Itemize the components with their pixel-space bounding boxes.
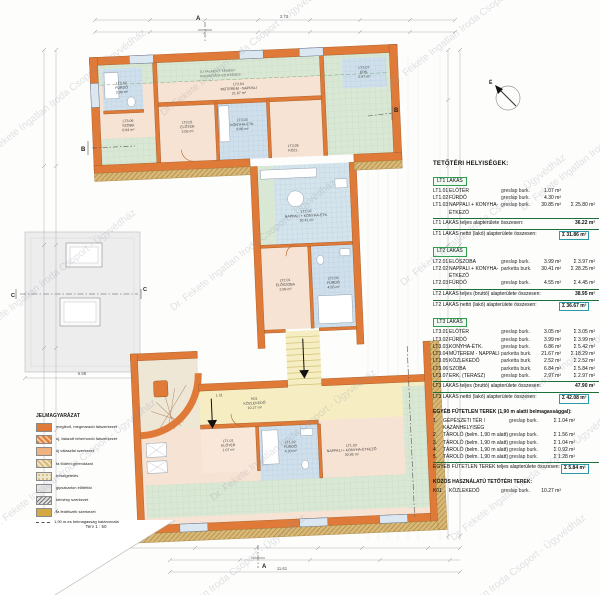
legend: JELMAGYARÁZAT meglévő, megmaradó falszer… [36,414,128,528]
schedule-row: LT2.03FÜRDŐgreslap burk.4.55 m²Σ 4.45 m² [433,280,599,287]
schedule-row: K01KÖZLEKEDŐgreslap burk.10.27 m² [433,488,599,495]
net-total-box: Σ 42.08 m² [559,394,589,403]
cell-finish: greslap burk. [501,280,533,287]
cell-code: LT3.01 [433,329,449,336]
section-total-row: LT1 LAKÁS teljes alapterülete összesen:3… [433,218,599,227]
cell-gross: 4.55 m² [533,280,561,287]
legend-title: JELMAGYARÁZAT [36,414,128,420]
net-total-box: Σ 31.86 m² [559,231,589,240]
cell-finish: parketta burk. [501,266,533,273]
schedule-title: TETŐTÉRI HELYISÉGEK: [433,160,599,169]
schedule-row: LT3.02FÜRDŐgreslap burk.3.99 m²Σ 3.99 m² [433,337,599,344]
cell-gross: 3.05 m² [533,329,561,336]
schedule-row: 2.TÁROLÓ (belm. 1,90 m alatt)greslap bur… [433,432,599,439]
cell-gross: 1.07 m² [533,188,561,195]
cell-finish: greslap burk. [501,188,533,195]
cell-gross: 6.86 m² [533,344,561,351]
cell-net: Σ 28.25 m² [561,266,595,273]
apartment-label: LT1 LAKÁS [433,177,467,186]
schedule-section-lt3: LT3 LAKÁS LT3.01ELŐTÉRgreslap burk.3.05 … [433,314,599,404]
cell-name: ERK. (TERASZ) [449,373,501,380]
cell-code: LT3.05 [433,358,449,365]
cell-finish: greslap burk. [501,329,533,336]
cell-code: LT1.02 [433,195,449,202]
cell-code: LT1.03 [433,202,449,209]
room-label-area: 3.05 m² [181,129,194,134]
cell-net: Σ 3.97 m² [561,259,595,266]
floor-plan-sheet: 5.98 C C [0,0,600,595]
svg-text:B: B [394,108,399,114]
neighbour-roof-plan: 5.98 [23,232,142,380]
cell-net: Σ 5.42 m² [561,344,595,351]
room-label-area: 2.97 m² [358,74,371,79]
stair-zone [138,358,201,431]
schedule-extra-section: EGYÉB FŰTETLEN TEREK (1,90 m alatti belm… [433,409,599,474]
cell-code: LT2.03 [433,280,449,287]
cell-name: ELŐSZOBA [449,259,501,266]
cell-finish: greslap burk. [501,195,533,202]
building: LT3.02 FÜRDŐ 3.99 m² LT3.06 SZOBA 6.84 m… [89,43,447,544]
cell-code: LT3.07 [433,373,449,380]
cell-gross: 30.85 m² [533,202,561,209]
dim-label: 11.61 [277,566,288,571]
legend-item: új válaszfal szerkezet [36,447,128,456]
sheet-corner [0,520,175,595]
cell-net: Σ 18.29 m² [561,351,595,358]
schedule-row: LT1.03NAPPALI + KONYHA-ÉTKEZŐgreslap bur… [433,202,599,217]
skylight [60,298,100,326]
svg-text:A: A [262,564,267,570]
legend-item: gipszkarton előtétfal [36,484,128,493]
north-arrow: É [489,78,520,110]
cell-gross: 2.52 m² [533,358,561,365]
cell-finish: parketta burk. [501,366,533,373]
common-title: KÖZÖS HASZNÁLATÚ TETŐTÉRI TEREK: [433,479,599,486]
cell-net: Σ 3.99 m² [561,337,595,344]
cell-code: LT3.04 [433,351,449,358]
legend-swatch-roof-timber [36,508,52,517]
legend-item: fa fedélszék szerkezet [36,508,128,517]
section-marker-c: C [143,287,147,293]
legend-item: fa födém gerendázat [36,459,128,468]
legend-swatch-existing-wall [36,423,52,432]
cell-name: FÜRDŐ [449,337,501,344]
net-total-box: Σ 5.84 m² [561,464,589,473]
cell-finish: greslap burk. [501,373,533,380]
cell-net: Σ 5.84 m² [561,366,595,373]
section-net-row: LT1 LAKÁS nettó (lakó) alapterülete össz… [433,229,599,240]
cell-net: Σ 25.80 m² [561,202,595,209]
room-schedule: TETŐTÉRI HELYISÉGEK: LT1 LAKÁS LT1.01ELŐ… [433,160,600,495]
schedule-common-section: KÖZÖS HASZNÁLATÚ TETŐTÉRI TEREK: K01KÖZL… [433,479,599,496]
legend-item: hőszigetelés [36,472,128,481]
legend-swatch-drywall [36,484,52,493]
cell-code: LT3.02 [433,337,449,344]
schedule-row: LT3.07ERK. (TERASZ)greslap burk.2.97 m²Σ… [433,373,599,380]
cell-gross: 21.67 m² [533,351,561,358]
svg-text:B: B [81,147,86,153]
section-marker-a-bottom: A [251,545,267,570]
cell-finish: parketta burk. [501,358,533,365]
cell-finish: greslap burk. [501,344,533,351]
cell-code: LT2.02 [433,266,449,273]
section-total-row: LT2 LAKÁS teljes (bruttó) alapterülete ö… [433,289,599,298]
room-label-area: 3.99 m² [116,90,129,95]
cell-gross: 3.99 m² [533,337,561,344]
room-label-area: 6.84 m² [122,128,135,133]
legend-swatch-wood-joist [36,459,52,468]
cell-gross: 6.84 m² [533,366,561,373]
chimney [153,381,168,398]
schedule-row: 3.TÁROLÓ (belm. 1,90 m alatt)greslap bur… [433,440,599,447]
schedule-row: LT2.02NAPPALI + KONYHA-ÉTKEZŐparketta bu… [433,266,599,281]
legend-item: kémény szerkezet [36,496,128,505]
room-label-area: 4.30 m² [284,449,297,454]
cell-name: SZOBA [449,366,501,373]
svg-text:A: A [196,16,201,22]
dim-label: 5.98 [78,371,87,376]
room-label-area: 4.55 m² [327,285,340,290]
stair-run-label: L 11 [216,393,223,397]
section-net-row: LT3 LAKÁS nettó (lakó) alapterülete össz… [433,392,599,403]
cell-net: Σ 2.52 m² [561,358,595,365]
extra-title: EGYÉB FŰTETLEN TEREK (1,90 m alatti belm… [433,409,599,416]
room-label-area: 10.27 m² [248,405,263,410]
schedule-row: LT3.01ELŐTÉRgreslap burk.3.05 m²Σ 3.05 m… [433,329,599,336]
schedule-row: LT3.06SZOBAparketta burk.6.84 m²Σ 5.84 m… [433,366,599,373]
cell-code: LT3.06 [433,366,449,373]
cell-finish: parketta burk. [501,351,533,358]
cell-net: Σ 3.05 m² [561,329,595,336]
cell-name: KÖZLEKEDŐ [449,358,501,365]
room-label-area: 3.99 m² [279,287,292,292]
cell-name: NAPPALI + KONYHA-ÉTKEZŐ [449,266,501,281]
section-marker-c: C [11,293,15,299]
room-label-area: 30.85 m² [345,452,360,457]
apartment-label: LT3 LAKÁS [433,318,467,327]
legend-swatch-new-wall [36,435,52,444]
cell-gross: 2.97 m² [533,373,561,380]
legend-item: 1,90 m-es belmagasság határvonala [36,520,128,525]
cell-name: FÜRDŐ [449,195,501,202]
room-label-name: KÖZL. [288,148,299,152]
skylight [66,243,102,267]
cell-code: LT2.01 [433,259,449,266]
cell-net: Σ 2.97 m² [561,373,595,380]
schedule-section-lt2: LT2 LAKÁS LT2.01ELŐSZOBAgreslap burk.3.9… [433,243,599,311]
room-label-area: 21.67 m² [232,91,247,96]
cell-name: ELŐTÉR [449,329,501,336]
room-label-area: 30.41 m² [299,218,314,223]
north-label: É [489,78,493,86]
legend-item: új, falazott teherhordó falszerkezet [36,435,128,444]
cell-name: NAPPALI + KONYHA-ÉTKEZŐ [449,202,501,217]
schedule-section-lt1: LT1 LAKÁS LT1.01ELŐTÉRgreslap burk.1.07 … [433,173,599,241]
section-net-row: LT2 LAKÁS nettó (lakó) alapterülete össz… [433,300,599,311]
cell-finish: greslap burk. [501,337,533,344]
apartment-label: LT2 LAKÁS [433,247,467,256]
cell-net: Σ 4.45 m² [561,280,595,287]
schedule-row: LT2.01ELŐSZOBAgreslap burk.3.99 m²Σ 3.97… [433,259,599,266]
cell-finish: greslap burk. [501,259,533,266]
cell-gross: 3.99 m² [533,259,561,266]
legend-swatch-partition [36,447,52,456]
legend-swatch-headroom-line [36,522,50,523]
legend-swatch-insulation [36,472,52,481]
legend-item: meglévő, megmaradó falszerkezet [36,423,128,432]
cell-gross: 30.41 m² [533,266,561,273]
schedule-row: 1.GÉPÉSZETI TÉR / KAZÁNHELYISÉGgreslap b… [433,418,599,433]
schedule-row: LT1.02FÜRDŐgreslap burk.4.30 m² [433,195,599,202]
schedule-row: 5.TÁROLÓ (belm. 1,90 m alatt)greslap bur… [433,454,599,461]
section-total-row: LT3 LAKÁS teljes (bruttó) alapterülete ö… [433,381,599,390]
cell-code: LT1.01 [433,188,449,195]
schedule-row: LT3.05KÖZLEKEDŐparketta burk.2.52 m²Σ 2.… [433,358,599,365]
cell-code: LT3.03 [433,344,449,351]
cell-name: FÜRDŐ [449,280,501,287]
room-label-area: 6.86 m² [236,127,249,132]
legend-swatch-chimney [36,496,52,505]
net-total-box: Σ 36.67 m² [559,302,589,311]
dim-label: 3.73 [280,14,289,19]
cell-finish: greslap burk. [501,202,533,209]
section-total-row: EGYÉB FŰTETLEN TEREK teljes alapterülete… [433,462,599,473]
room-label-area: 1.07 m² [222,448,235,453]
cell-gross: 4.30 m² [533,195,561,202]
